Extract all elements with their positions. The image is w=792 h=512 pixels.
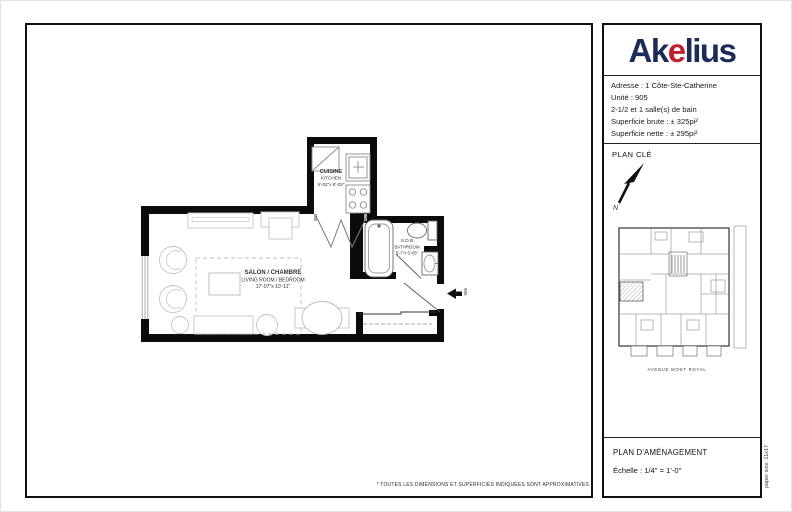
unit-number: 905 bbox=[463, 288, 468, 296]
logo-part2: lius bbox=[685, 32, 736, 69]
unit-info: Adresse : 1 Côte-Ste-Catherine Unité : 9… bbox=[604, 76, 760, 144]
entry-arrow-icon bbox=[447, 289, 462, 300]
disclaimer: * TOUTES LES DIMENSIONS ET SUPERFICIES I… bbox=[377, 482, 589, 488]
toilet-tank bbox=[428, 221, 437, 240]
logo-section: Akelius bbox=[604, 25, 760, 76]
kitchen-dimensions: 5'-02"x 6'-03" bbox=[318, 182, 345, 187]
title-block: Akelius Adresse : 1 Côte-Ste-Catherine U… bbox=[602, 23, 762, 498]
logo-accent-e: e bbox=[668, 32, 685, 69]
living-dimensions: 17'-07"x 10'-11" bbox=[256, 284, 291, 290]
address-line: Adresse : 1 Côte-Ste-Catherine bbox=[611, 80, 753, 92]
window bbox=[142, 256, 148, 319]
living-label-en: LIVING ROOM / BEDROOM bbox=[241, 278, 304, 284]
key-plan-section: PLAN CLÉ N bbox=[604, 144, 760, 438]
walls bbox=[141, 137, 444, 342]
bathroom-door bbox=[396, 254, 421, 279]
key-plan-title: PLAN CLÉ bbox=[612, 150, 652, 159]
north-arrow-icon: N bbox=[610, 160, 652, 212]
living-label-fr: SALON / CHAMBRE bbox=[245, 270, 302, 276]
plan-scale: Échelle : 1/4" = 1'-0" bbox=[613, 466, 751, 475]
desk-chair bbox=[269, 218, 292, 239]
gross-area-line: Superficie brute : ± 325pi² bbox=[611, 116, 753, 128]
plan-footer: PLAN D'AMÉNAGEMENT Échelle : 1/4" = 1'-0… bbox=[604, 438, 760, 496]
entry-door bbox=[404, 283, 440, 312]
stool bbox=[172, 317, 189, 334]
dining-table bbox=[302, 302, 342, 335]
north-label: N bbox=[613, 205, 619, 212]
paper-size-note: paper size: 11x17 bbox=[764, 445, 770, 488]
unit-line: Unité : 905 bbox=[611, 92, 753, 104]
unit-905-highlight bbox=[620, 282, 643, 301]
akelius-logo: Akelius bbox=[629, 34, 736, 67]
rooms-line: 2-1/2 et 1 salle(s) de bain bbox=[611, 104, 753, 116]
kitchen-label-en: KITCHEN bbox=[321, 176, 341, 181]
bench bbox=[194, 316, 253, 334]
net-area-line: Superficie nette : ± 295pi² bbox=[611, 128, 753, 140]
bath-label-fr: S.D.B bbox=[401, 238, 414, 244]
bath-label-en: BATHROOM bbox=[394, 245, 419, 250]
sheet: CUISINE KITCHEN 5'-02"x 6'-03" SALON / C… bbox=[0, 0, 792, 512]
kitchen-label-fr: CUISINE bbox=[320, 169, 343, 175]
closet bbox=[359, 312, 436, 324]
logo-part1: Ak bbox=[629, 32, 668, 69]
plan-type-title: PLAN D'AMÉNAGEMENT bbox=[613, 448, 751, 457]
entry-marker: 905 bbox=[447, 288, 468, 299]
stove bbox=[346, 185, 370, 213]
key-plan-drawing: AVENUE MONT ROYAL bbox=[611, 224, 757, 378]
side-table bbox=[209, 273, 240, 295]
toilet bbox=[408, 223, 427, 238]
street-label: AVENUE MONT ROYAL bbox=[648, 367, 707, 372]
stool bbox=[257, 315, 278, 336]
floorplan: CUISINE KITCHEN 5'-02"x 6'-03" SALON / C… bbox=[131, 131, 476, 351]
bath-dimensions: 5'-7"x 5'-05" bbox=[396, 251, 419, 256]
